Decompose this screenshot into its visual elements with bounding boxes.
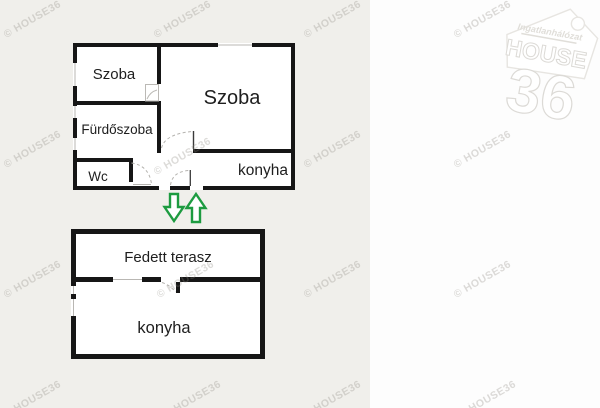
wall-bedroom-bathroom	[73, 101, 161, 105]
wall-top	[73, 43, 295, 47]
room-label-kitchen-lower: konyha	[137, 319, 191, 337]
house36-logo-drawing: Ingatlanhálózat HOUSE 36	[488, 0, 600, 132]
entry-arrows-drawing	[160, 191, 210, 225]
house36-logo-group: Ingatlanhálózat HOUSE 36	[492, 0, 600, 132]
wall-wc-right	[129, 158, 133, 182]
wall-inner-vertical-upper	[157, 43, 161, 84]
window-line-left-2	[75, 106, 76, 118]
door-opening-terrace-2	[190, 186, 203, 190]
room-label-kitchen-upper: konyha	[238, 162, 288, 179]
watermark-text: © HOUSE36	[452, 255, 519, 300]
wall-kitchen-divider-stub	[157, 149, 161, 153]
door-opening-divider	[161, 277, 180, 282]
wall-kitchen-divider	[193, 149, 295, 153]
wall-bathroom-wc	[73, 158, 133, 162]
room-label-bedroom-small: Szoba	[93, 66, 136, 83]
wall-right	[291, 43, 295, 190]
lower-building-drawing: Fedett terasz konyha	[71, 229, 265, 359]
floorplan-photo-page: Szoba Szoba Fürdőszoba Wc konyha	[0, 0, 600, 408]
room-label-terrace: Fedett terasz	[124, 249, 212, 266]
room-label-wc: Wc	[88, 169, 108, 184]
room-label-bedroom-large: Szoba	[204, 87, 262, 109]
window-line-left-2	[73, 299, 74, 316]
entry-arrows	[160, 191, 210, 230]
house36-logo: Ingatlanhálózat HOUSE 36	[488, 0, 600, 137]
watermark-text: © HOUSE36	[457, 375, 524, 408]
window-line-left-3	[75, 138, 76, 150]
arrow-down-icon	[165, 194, 184, 221]
wall-inner-vertical-lower	[157, 102, 161, 153]
lower-building-plan: Fedett terasz konyha	[71, 229, 265, 359]
door-leaf-lower	[176, 282, 180, 293]
door-opening-terrace-1	[159, 186, 170, 190]
logo-number-text: 36	[501, 55, 581, 132]
arrow-up-icon	[187, 194, 206, 222]
wall-bottom	[71, 354, 265, 359]
upper-building-plan: Szoba Szoba Fürdőszoba Wc konyha	[73, 43, 295, 190]
wall-bottom	[73, 186, 295, 190]
window-line-divider	[113, 279, 142, 280]
window-line-top	[218, 45, 252, 46]
upper-building-drawing: Szoba Szoba Fürdőszoba Wc konyha	[73, 43, 295, 190]
wall-right	[260, 229, 265, 359]
window-line-left-1	[73, 286, 74, 294]
room-label-bathroom: Fürdőszoba	[81, 122, 153, 137]
window-line-left-1	[75, 63, 76, 86]
